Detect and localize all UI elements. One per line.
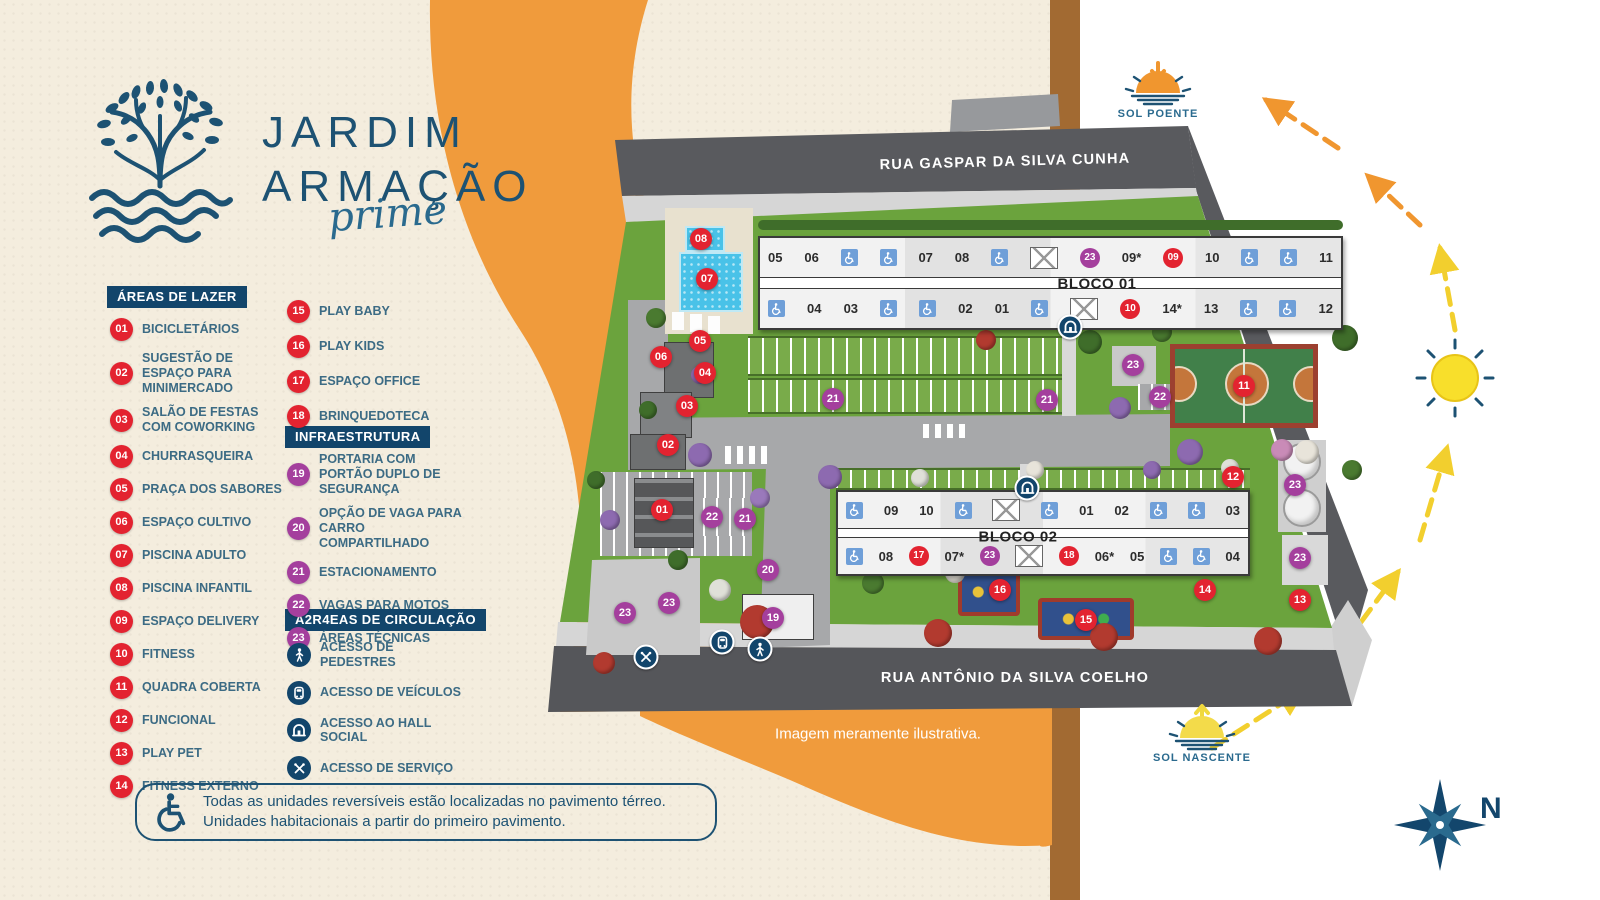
sol-nascente-label: SOL NASCENTE xyxy=(1153,752,1251,764)
sol-nascente-icon xyxy=(1162,700,1242,752)
compass-north-label: N xyxy=(1480,792,1502,826)
page: JARDIM ARMAÇÃO prime ÁREAS DE LAZER INFR… xyxy=(0,0,1600,900)
sol-poente-icon xyxy=(1118,55,1198,107)
sun-icon xyxy=(1417,340,1493,416)
sol-poente-label: SOL POENTE xyxy=(1118,108,1199,120)
sun-path-arc xyxy=(0,0,1600,900)
compass-rose-icon xyxy=(1390,775,1490,875)
